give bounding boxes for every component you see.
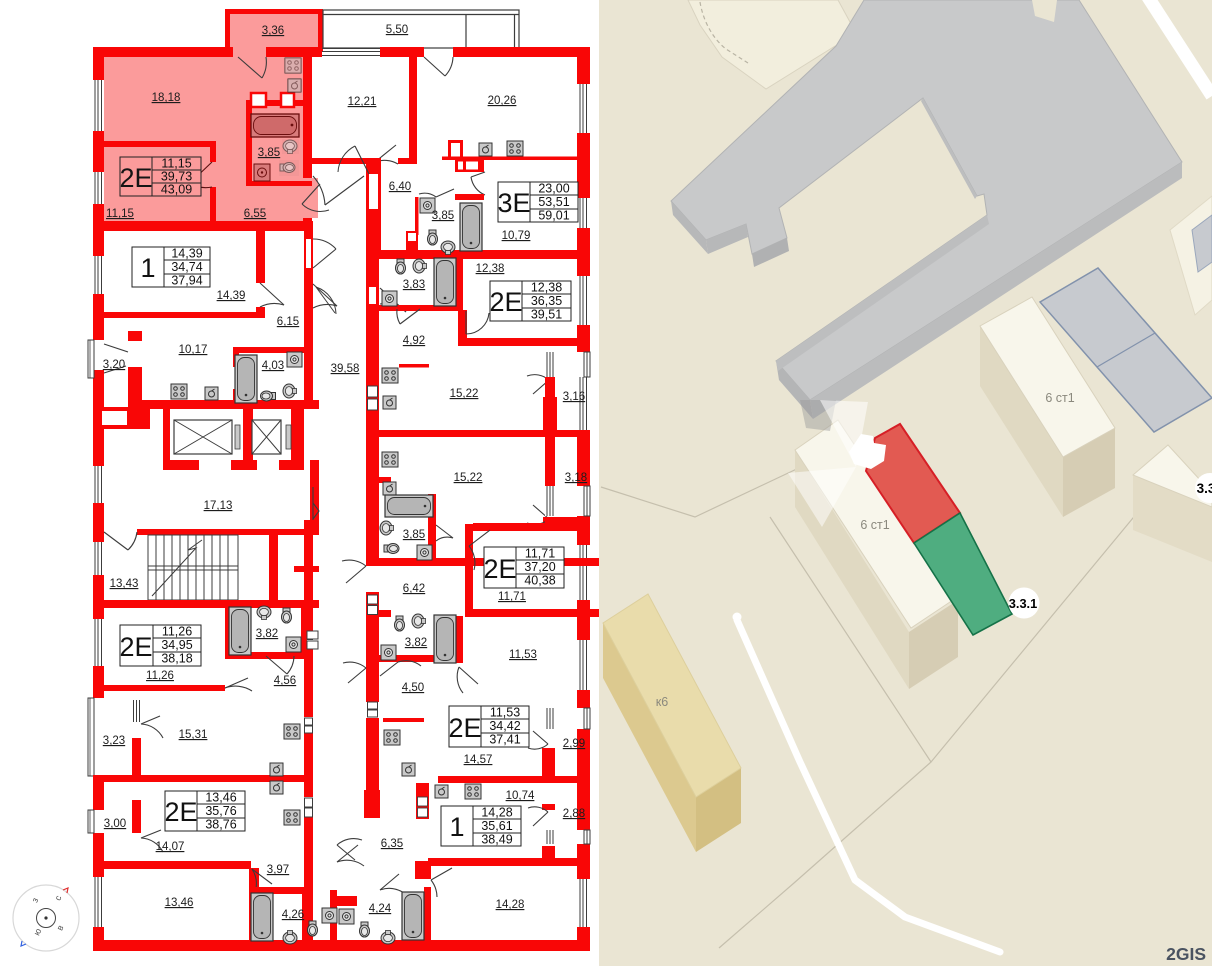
svg-text:6,15: 6,15 <box>277 316 299 328</box>
svg-text:4,50: 4,50 <box>402 682 424 694</box>
svg-text:59,01: 59,01 <box>538 209 569 223</box>
svg-text:11,53: 11,53 <box>490 706 520 720</box>
svg-text:6 ст1: 6 ст1 <box>1045 391 1074 405</box>
svg-text:14,28: 14,28 <box>496 899 525 911</box>
svg-text:14,28: 14,28 <box>481 806 512 820</box>
svg-text:к6: к6 <box>656 695 668 709</box>
svg-text:2Е: 2Е <box>164 797 197 827</box>
svg-text:37,41: 37,41 <box>489 733 520 747</box>
svg-text:10,74: 10,74 <box>506 790 535 802</box>
svg-text:35,61: 35,61 <box>481 819 512 833</box>
svg-text:3,82: 3,82 <box>256 628 278 640</box>
svg-text:1: 1 <box>140 253 155 283</box>
svg-text:6,40: 6,40 <box>389 181 411 193</box>
svg-text:6 ст1: 6 ст1 <box>860 518 889 532</box>
svg-text:2GIS: 2GIS <box>1166 944 1206 964</box>
svg-text:53,51: 53,51 <box>538 195 569 209</box>
svg-text:4,56: 4,56 <box>274 675 296 687</box>
svg-text:3,16: 3,16 <box>563 391 585 403</box>
svg-text:36,35: 36,35 <box>531 294 562 308</box>
svg-text:11,15: 11,15 <box>161 157 191 171</box>
svg-text:3,85: 3,85 <box>432 210 454 222</box>
svg-text:39,51: 39,51 <box>531 308 562 322</box>
svg-text:3.3: 3.3 <box>1197 481 1212 496</box>
svg-text:15,31: 15,31 <box>179 729 208 741</box>
svg-text:13,46: 13,46 <box>205 791 236 805</box>
svg-text:34,95: 34,95 <box>161 638 192 652</box>
svg-text:4,26: 4,26 <box>282 909 304 921</box>
svg-text:3,82: 3,82 <box>405 637 427 649</box>
svg-text:6,42: 6,42 <box>403 583 425 595</box>
svg-text:15,22: 15,22 <box>450 388 479 400</box>
svg-text:14,39: 14,39 <box>217 290 246 302</box>
svg-text:34,42: 34,42 <box>489 719 520 733</box>
svg-text:3,18: 3,18 <box>565 472 587 484</box>
svg-text:39,58: 39,58 <box>331 363 360 375</box>
svg-text:2Е: 2Е <box>483 554 516 584</box>
svg-text:11,71: 11,71 <box>498 591 526 603</box>
svg-text:14,07: 14,07 <box>156 841 185 853</box>
svg-text:12,38: 12,38 <box>476 263 505 275</box>
svg-text:6,55: 6,55 <box>244 208 266 220</box>
svg-text:35,76: 35,76 <box>205 804 236 818</box>
svg-text:3,36: 3,36 <box>262 25 284 37</box>
svg-text:23,00: 23,00 <box>538 182 569 196</box>
svg-text:3,97: 3,97 <box>267 864 289 876</box>
svg-text:34,74: 34,74 <box>171 260 202 274</box>
svg-text:3Е: 3Е <box>497 188 530 218</box>
svg-text:11,26: 11,26 <box>162 625 192 639</box>
svg-text:4,92: 4,92 <box>403 335 425 347</box>
svg-text:18,18: 18,18 <box>152 92 181 104</box>
svg-text:13,43: 13,43 <box>110 578 139 590</box>
svg-text:10,17: 10,17 <box>179 344 208 356</box>
svg-text:37,94: 37,94 <box>171 274 202 288</box>
svg-text:10,79: 10,79 <box>502 230 531 242</box>
svg-text:38,76: 38,76 <box>205 818 236 832</box>
svg-text:39,73: 39,73 <box>161 170 192 184</box>
svg-text:4,03: 4,03 <box>262 360 284 372</box>
svg-text:2,88: 2,88 <box>563 808 585 820</box>
svg-text:3,23: 3,23 <box>103 735 125 747</box>
svg-text:15,22: 15,22 <box>454 472 483 484</box>
svg-text:14,57: 14,57 <box>464 754 493 766</box>
svg-text:43,09: 43,09 <box>161 183 192 197</box>
svg-text:4,24: 4,24 <box>369 903 392 915</box>
svg-text:3,20: 3,20 <box>103 359 125 371</box>
svg-text:3,00: 3,00 <box>104 818 126 830</box>
svg-text:13,46: 13,46 <box>165 897 194 909</box>
svg-text:37,20: 37,20 <box>524 560 555 574</box>
svg-text:12,38: 12,38 <box>531 281 562 295</box>
svg-text:3,85: 3,85 <box>258 147 280 159</box>
svg-text:17,13: 17,13 <box>204 500 233 512</box>
svg-text:12,21: 12,21 <box>348 96 377 108</box>
svg-text:2,99: 2,99 <box>563 738 585 750</box>
svg-text:40,38: 40,38 <box>524 574 555 588</box>
svg-text:3,85: 3,85 <box>403 529 425 541</box>
svg-text:11,15: 11,15 <box>106 208 134 220</box>
svg-text:2Е: 2Е <box>119 163 152 193</box>
svg-text:2Е: 2Е <box>119 632 152 662</box>
svg-text:2Е: 2Е <box>489 287 522 317</box>
svg-text:11,26: 11,26 <box>146 670 174 682</box>
svg-text:3,83: 3,83 <box>403 279 425 291</box>
svg-text:14,39: 14,39 <box>171 247 202 261</box>
svg-text:11,71: 11,71 <box>525 547 555 561</box>
svg-text:11,53: 11,53 <box>509 649 537 661</box>
svg-text:3.3.1: 3.3.1 <box>1009 596 1037 611</box>
svg-text:5,50: 5,50 <box>386 24 408 36</box>
svg-text:38,49: 38,49 <box>481 833 512 847</box>
svg-text:38,18: 38,18 <box>161 652 192 666</box>
svg-text:20,26: 20,26 <box>488 95 517 107</box>
svg-text:2Е: 2Е <box>448 713 481 743</box>
svg-text:1: 1 <box>449 812 464 842</box>
svg-text:6,35: 6,35 <box>381 838 403 850</box>
